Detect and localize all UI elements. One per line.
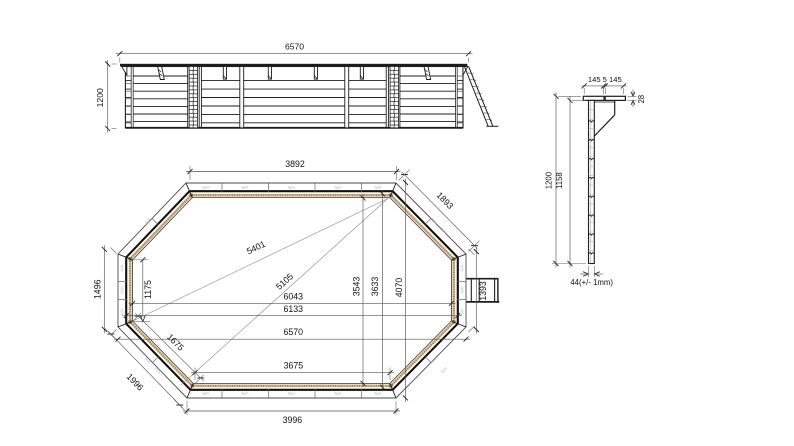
- svg-text:6133: 6133: [284, 304, 304, 314]
- svg-text:N/A: N/A: [120, 286, 125, 293]
- svg-text:N/A: N/A: [375, 391, 382, 396]
- svg-text:3633: 3633: [370, 277, 380, 297]
- svg-text:N/A: N/A: [120, 308, 125, 315]
- svg-text:3675: 3675: [284, 360, 304, 370]
- svg-text:6570: 6570: [285, 41, 304, 51]
- svg-text:5105: 5105: [274, 271, 295, 292]
- svg-text:6043: 6043: [284, 292, 304, 302]
- svg-text:N/A: N/A: [459, 286, 464, 293]
- svg-text:1996: 1996: [125, 371, 146, 392]
- svg-text:1175: 1175: [143, 280, 153, 299]
- svg-text:N/A: N/A: [459, 264, 464, 271]
- svg-text:N/A: N/A: [335, 391, 342, 396]
- svg-text:N/A: N/A: [288, 185, 295, 190]
- svg-text:1200: 1200: [545, 171, 554, 189]
- svg-text:1496: 1496: [93, 279, 103, 299]
- svg-text:N/A: N/A: [242, 185, 249, 190]
- svg-text:3996: 3996: [283, 415, 303, 425]
- svg-text:N/A: N/A: [154, 366, 163, 375]
- svg-text:N/A: N/A: [375, 185, 382, 190]
- svg-text:N/A: N/A: [203, 391, 210, 396]
- svg-text:N/A: N/A: [440, 227, 449, 236]
- svg-text:5401: 5401: [245, 239, 267, 257]
- svg-text:N/A: N/A: [335, 185, 342, 190]
- svg-text:N/A: N/A: [440, 366, 449, 375]
- svg-text:3543: 3543: [351, 277, 361, 297]
- svg-text:N/A: N/A: [459, 308, 464, 315]
- svg-text:1675: 1675: [165, 332, 186, 353]
- svg-text:44(+/- 1mm): 44(+/- 1mm): [570, 278, 613, 287]
- svg-text:1158: 1158: [555, 172, 564, 189]
- svg-text:N/A: N/A: [144, 356, 153, 365]
- svg-text:N/A: N/A: [203, 185, 210, 190]
- svg-text:3892: 3892: [285, 159, 305, 169]
- svg-text:4070: 4070: [394, 278, 404, 298]
- svg-text:N/A: N/A: [120, 264, 125, 271]
- svg-text:6570: 6570: [284, 327, 304, 337]
- svg-text:N/A: N/A: [242, 391, 249, 396]
- svg-text:1393: 1393: [478, 281, 488, 301]
- svg-text:1200: 1200: [95, 88, 105, 107]
- svg-text:145 5 145: 145 5 145: [588, 75, 622, 84]
- svg-text:N/A: N/A: [144, 217, 153, 226]
- svg-text:28: 28: [637, 95, 646, 104]
- svg-text:N/A: N/A: [288, 391, 295, 396]
